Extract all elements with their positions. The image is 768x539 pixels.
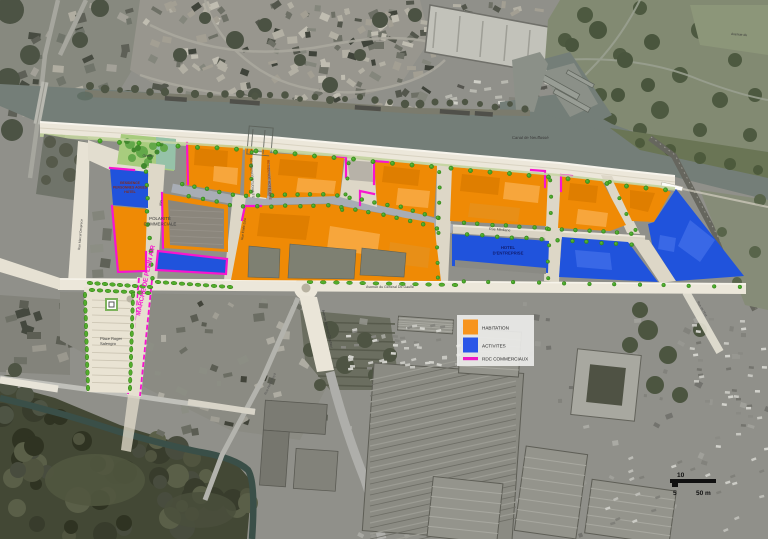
- svg-text:COMMERCIALE: COMMERCIALE: [144, 222, 177, 227]
- svg-text:Salengro: Salengro: [100, 341, 117, 346]
- svg-text:ACTIVITES: ACTIVITES: [482, 344, 506, 349]
- svg-text:Avenue du Général De Gaulle: Avenue du Général De Gaulle: [366, 285, 414, 289]
- svg-text:POLARITÉ: POLARITÉ: [149, 216, 171, 221]
- svg-text:HOTEL: HOTEL: [501, 245, 516, 250]
- svg-text:RESIDENCE: RESIDENCE: [120, 181, 141, 185]
- svg-text:PERSONNES AGEES: PERSONNES AGEES: [113, 186, 148, 190]
- svg-text:HOTEL: HOTEL: [124, 190, 136, 194]
- svg-text:Canal de Neuffossé: Canal de Neuffossé: [512, 135, 549, 140]
- svg-text:D'ENTREPRISE: D'ENTREPRISE: [493, 251, 524, 256]
- svg-text:HABITATION: HABITATION: [482, 326, 509, 331]
- svg-text:Mail: Mail: [158, 200, 163, 206]
- svg-text:RDC COMMERCIAUX: RDC COMMERCIAUX: [482, 357, 528, 362]
- svg-text:50 m: 50 m: [696, 490, 711, 497]
- svg-text:Green: Green: [142, 153, 153, 158]
- svg-text:10: 10: [677, 472, 685, 479]
- svg-text:5: 5: [673, 490, 677, 497]
